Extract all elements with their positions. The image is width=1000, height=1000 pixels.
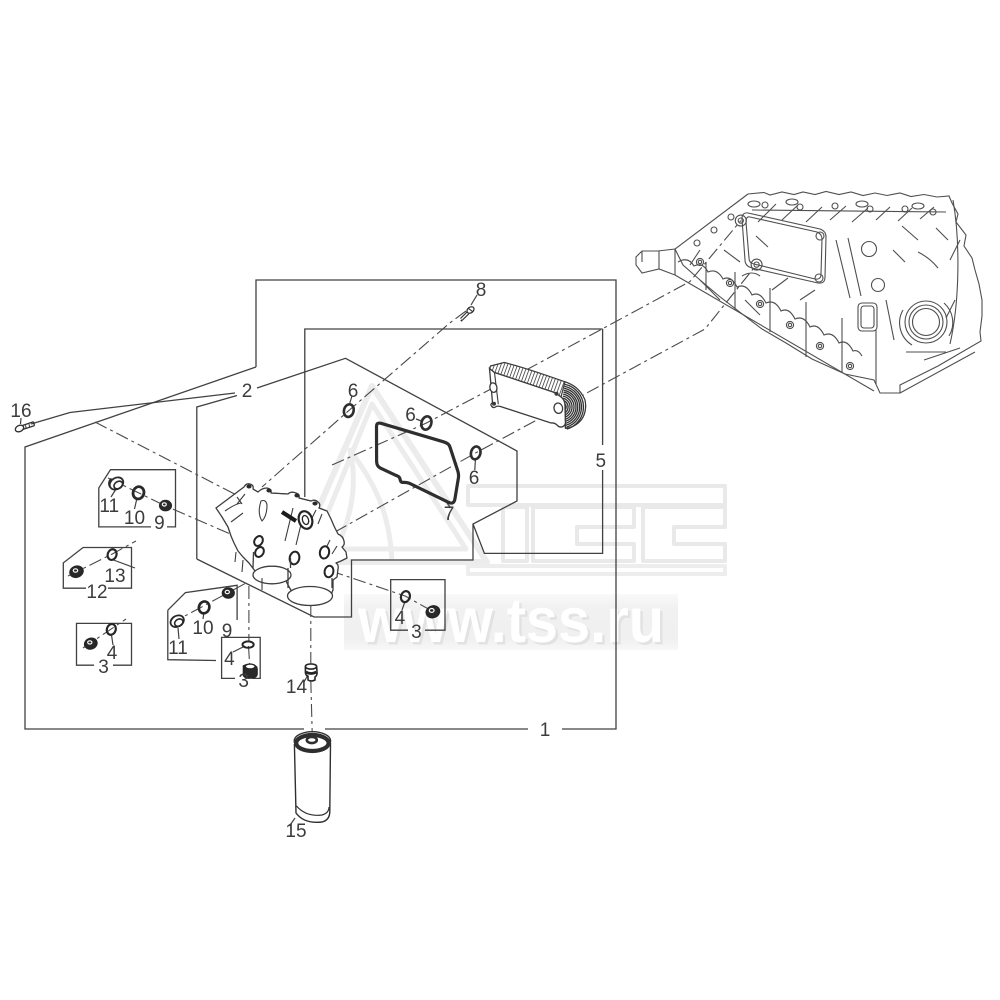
svg-text:6: 6 [469, 468, 480, 489]
svg-text:9: 9 [154, 513, 165, 534]
svg-text:15: 15 [285, 821, 306, 842]
svg-text:16: 16 [10, 401, 31, 422]
svg-text:6: 6 [405, 405, 416, 426]
svg-text:14: 14 [286, 677, 308, 698]
svg-text:9: 9 [222, 621, 233, 642]
svg-text:3: 3 [411, 622, 422, 643]
svg-text:13: 13 [104, 566, 125, 587]
svg-text:11: 11 [168, 638, 188, 659]
svg-text:4: 4 [224, 649, 235, 670]
svg-text:3: 3 [238, 671, 249, 692]
svg-text:1: 1 [540, 720, 551, 741]
svg-text:7: 7 [444, 504, 455, 525]
svg-text:4: 4 [395, 608, 406, 629]
svg-text:11: 11 [99, 496, 119, 517]
svg-text:5: 5 [596, 451, 607, 472]
svg-text:8: 8 [476, 280, 487, 301]
svg-text:4: 4 [107, 643, 118, 664]
svg-text:6: 6 [348, 381, 359, 402]
svg-text:10: 10 [192, 618, 213, 639]
svg-text:10: 10 [124, 508, 145, 529]
svg-text:2: 2 [242, 381, 253, 402]
